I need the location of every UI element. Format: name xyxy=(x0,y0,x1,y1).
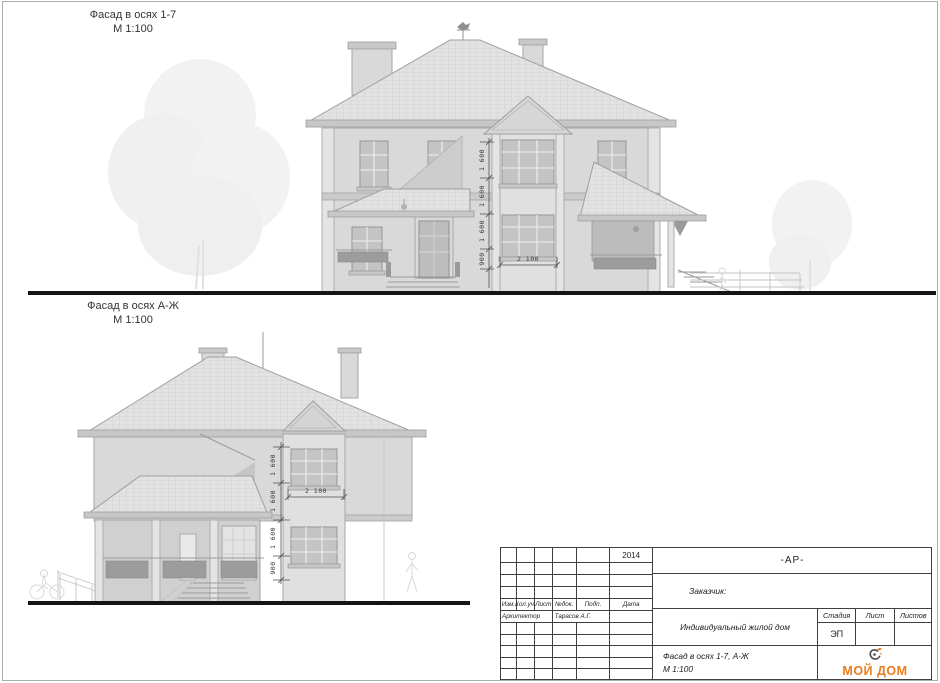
year-cell: 2014 xyxy=(610,548,652,562)
stage-value: ЭП xyxy=(818,623,856,645)
dim-label: 2 100 xyxy=(305,487,327,495)
window xyxy=(357,141,391,191)
window xyxy=(288,449,340,490)
sheet-name: Фасад в осях 1-7, А-Ж xyxy=(663,650,817,662)
dim-label: 1 600 xyxy=(478,149,486,171)
tree-right xyxy=(769,180,852,291)
dim-label: 1 600 xyxy=(269,527,277,549)
person-figure xyxy=(406,553,418,593)
sheet-name-cell: Фасад в осях 1-7, А-Ж М 1:100 xyxy=(653,646,818,679)
col-data: Дата xyxy=(610,599,652,610)
sheet-label: Лист xyxy=(856,609,894,622)
tree-left xyxy=(108,59,290,289)
window xyxy=(499,140,557,188)
customer-cell: Заказчик: xyxy=(653,574,932,609)
window xyxy=(288,527,340,568)
title-block-main: -АР- Заказчик: Индивидуальный жилой дом … xyxy=(653,548,932,679)
doc-code-cell: -АР- xyxy=(653,548,932,574)
col-ndok: №док. xyxy=(553,599,577,610)
facade-1-7-drawing: 1 600 1 600 1 600 900 2 100 xyxy=(28,22,936,293)
dim-label: 1 600 xyxy=(269,454,277,476)
house-side xyxy=(30,332,426,603)
dim-label: 1 600 xyxy=(478,220,486,242)
title-block-revisions: 2014 Изм. Кол.уч. Лист №док. Подп. Дата xyxy=(501,548,653,679)
porch-lantern xyxy=(401,204,407,210)
drawing-sheet: Фасад в осях 1-7 М 1:100 Фасад в осях А-… xyxy=(0,0,940,683)
dim-label: 1 600 xyxy=(478,185,486,207)
logo: МОЙ ДОМ xyxy=(818,646,932,679)
bird-swirl-icon xyxy=(865,647,885,664)
title-block: 2014 Изм. Кол.уч. Лист №док. Подп. Дата xyxy=(500,547,932,680)
sheets-value xyxy=(895,623,932,645)
sheet-scale: М 1:100 xyxy=(663,663,817,675)
dim-label: 900 xyxy=(478,252,486,265)
cyclist-figure xyxy=(30,570,64,599)
dim-label: 2 100 xyxy=(517,255,539,263)
project-name-cell: Индивидуальный жилой дом xyxy=(653,609,818,645)
window xyxy=(349,227,385,275)
stage-block: Стадия Лист Листов ЭП xyxy=(818,609,932,645)
gable-bay xyxy=(283,401,345,603)
logo-text: МОЙ ДОМ xyxy=(842,664,907,678)
stair-railing xyxy=(58,570,96,603)
side-veranda xyxy=(95,520,264,603)
role-cell: Архитектор xyxy=(501,611,553,622)
dim-label: 1 600 xyxy=(269,490,277,512)
col-podp: Подп. xyxy=(577,599,611,610)
col-list: Лист xyxy=(535,599,553,610)
facade-a-zh-drawing: 1 600 1 600 1 600 900 2 100 xyxy=(28,332,470,603)
stage-label: Стадия xyxy=(818,609,856,622)
sheets-label: Листов xyxy=(895,609,932,622)
house-front xyxy=(306,22,804,293)
entrance-door xyxy=(415,217,453,278)
dim-label: 900 xyxy=(269,561,277,574)
sheet-value xyxy=(856,623,894,645)
name-cell: Тарасов А.Г. xyxy=(553,611,611,622)
col-koluch: Кол.уч. xyxy=(517,599,535,610)
